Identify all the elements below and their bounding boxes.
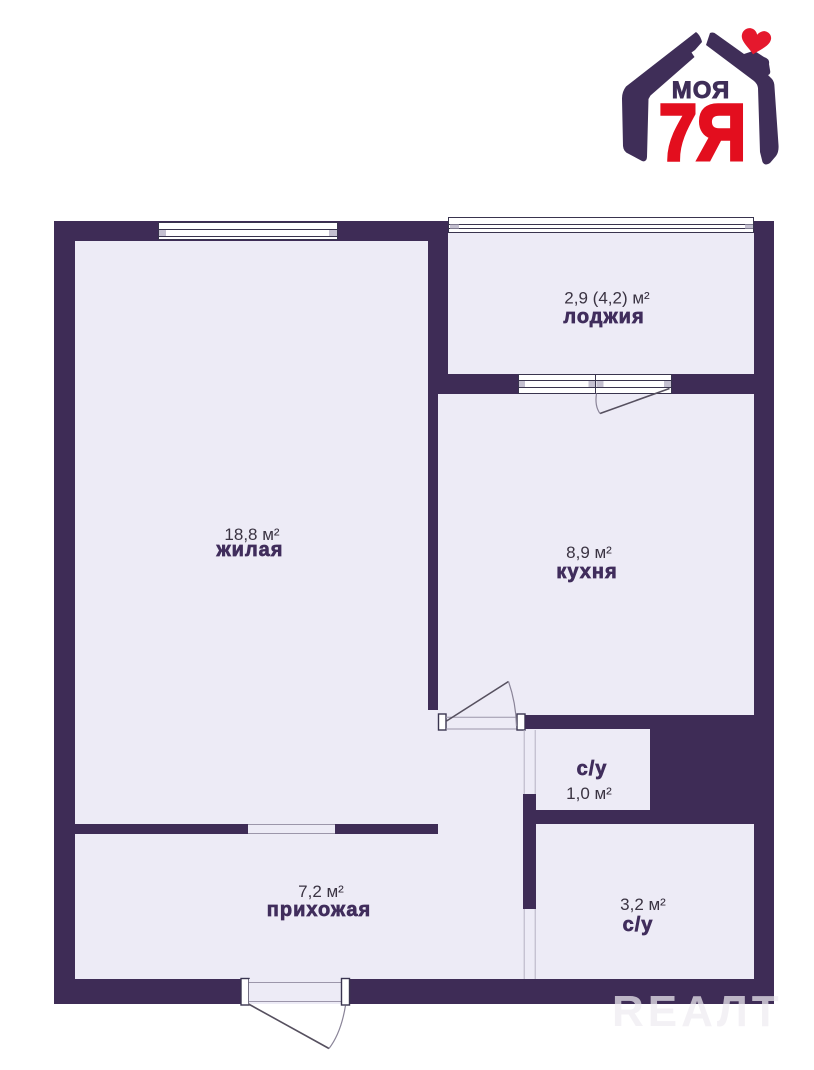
svg-text:прихожая: прихожая bbox=[267, 899, 371, 921]
svg-text:REAЛT: REAЛT bbox=[612, 987, 783, 1036]
svg-text:2,9 (4,2) м²: 2,9 (4,2) м² bbox=[564, 289, 650, 308]
svg-text:с/у: с/у bbox=[623, 914, 654, 936]
svg-text:3,2 м²: 3,2 м² bbox=[620, 895, 666, 914]
svg-text:7Я: 7Я bbox=[659, 88, 746, 177]
svg-text:с/у: с/у bbox=[577, 758, 608, 780]
svg-text:8,9 м²: 8,9 м² bbox=[566, 543, 612, 562]
svg-text:1,0 м²: 1,0 м² bbox=[566, 784, 612, 803]
svg-text:жилая: жилая bbox=[216, 539, 284, 561]
svg-text:лоджия: лоджия bbox=[563, 306, 644, 328]
svg-text:кухня: кухня bbox=[556, 561, 617, 583]
